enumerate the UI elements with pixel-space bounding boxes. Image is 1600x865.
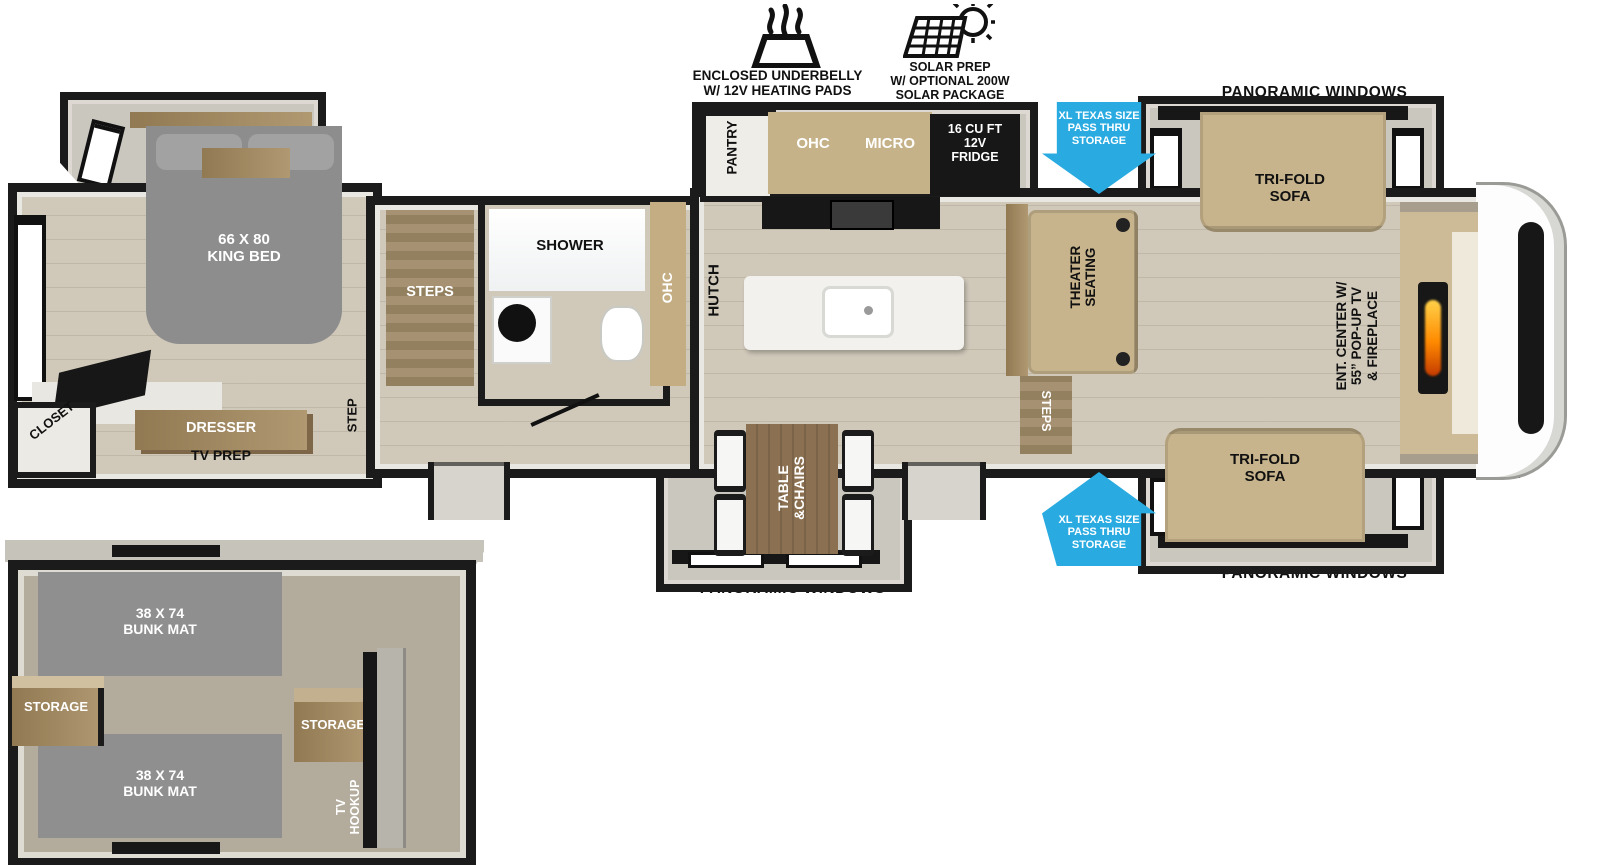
bunkroom-roof-vent bbox=[112, 545, 220, 557]
pantry-label: PANTRY bbox=[724, 98, 739, 198]
bedroom-step-label: STEP bbox=[346, 380, 361, 450]
theater-cupholder-bottom bbox=[1116, 352, 1130, 366]
fridge-label: 16 CU FT 12V FRIDGE bbox=[930, 122, 1020, 164]
dinette-chair-2 bbox=[714, 494, 746, 556]
dinette-table-label: TABLE &CHAIRS bbox=[762, 423, 822, 553]
living-steps-label: STEPS bbox=[1039, 371, 1053, 451]
fireplace-flame bbox=[1425, 300, 1441, 376]
tv-hookup-label: TV HOOKUP bbox=[327, 759, 369, 855]
sofa-top-window-right bbox=[1392, 128, 1424, 190]
bath-steps-label: STEPS bbox=[380, 284, 480, 300]
tri-fold-sofa-top-label: TRI-FOLD SOFA bbox=[1190, 172, 1390, 206]
dinette-chair-3 bbox=[842, 430, 874, 492]
bunkroom-wall-panel bbox=[377, 648, 406, 848]
pass-thru-top-label: XL TEXAS SIZE PASS THRU STORAGE bbox=[1042, 110, 1156, 147]
theater-cupholder-top bbox=[1116, 218, 1130, 232]
front-cap-window bbox=[1518, 222, 1544, 434]
theater-console bbox=[1006, 204, 1028, 376]
shower-label: SHOWER bbox=[500, 238, 640, 255]
solar-prep-icon bbox=[903, 4, 995, 62]
heating-pads-icon bbox=[733, 4, 828, 68]
bedroom-window-left bbox=[14, 215, 46, 401]
kitchen-ohc-label: OHC bbox=[778, 136, 848, 153]
toilet bbox=[600, 306, 644, 362]
bed-tray bbox=[202, 148, 290, 178]
tri-fold-sofa-bottom-label: TRI-FOLD SOFA bbox=[1165, 452, 1365, 486]
hutch-label: HUTCH bbox=[707, 235, 724, 345]
micro-label: MICRO bbox=[850, 136, 930, 153]
bath-sink bbox=[498, 304, 536, 342]
solar-label: SOLAR PREP W/ OPTIONAL 200W SOLAR PACKAG… bbox=[855, 60, 1045, 102]
dresser-label: DRESSER bbox=[135, 420, 307, 436]
sink-drain bbox=[864, 306, 873, 315]
entry-steps-front bbox=[902, 462, 986, 520]
bunkroom-roof-edge bbox=[5, 540, 483, 562]
dinette-chair-1 bbox=[714, 430, 746, 492]
king-bed-label: 66 X 80 KING BED bbox=[146, 232, 342, 266]
dinette-chair-4 bbox=[842, 494, 874, 556]
ent-center-label: ENT. CENTER W/ 55” POP-UP TV & FIREPLACE bbox=[1325, 241, 1389, 431]
tv-prep-label: TV PREP bbox=[135, 448, 307, 464]
bath-ohc-label: OHC bbox=[660, 238, 676, 338]
ent-center-shelf bbox=[1452, 232, 1478, 434]
kitchen-counter-upper bbox=[768, 112, 932, 194]
theater-seating-label: THEATER SEATING bbox=[1068, 212, 1098, 342]
bunkroom-bottom-vent bbox=[112, 842, 220, 854]
bunk-mat-bottom-label: 38 X 74 BUNK MAT bbox=[38, 768, 282, 799]
bunk-mat-top-label: 38 X 74 BUNK MAT bbox=[38, 606, 282, 637]
range-cooktop bbox=[830, 200, 894, 230]
pass-thru-bottom-label: XL TEXAS SIZE PASS THRU STORAGE bbox=[1042, 514, 1156, 551]
entry-steps-rear bbox=[428, 462, 510, 520]
rv-floorplan: ENCLOSED UNDERBELLY W/ 12V HEATING PADS … bbox=[0, 0, 1600, 865]
island-sink bbox=[822, 286, 894, 338]
bunk-storage-left-label: STORAGE bbox=[4, 700, 108, 715]
